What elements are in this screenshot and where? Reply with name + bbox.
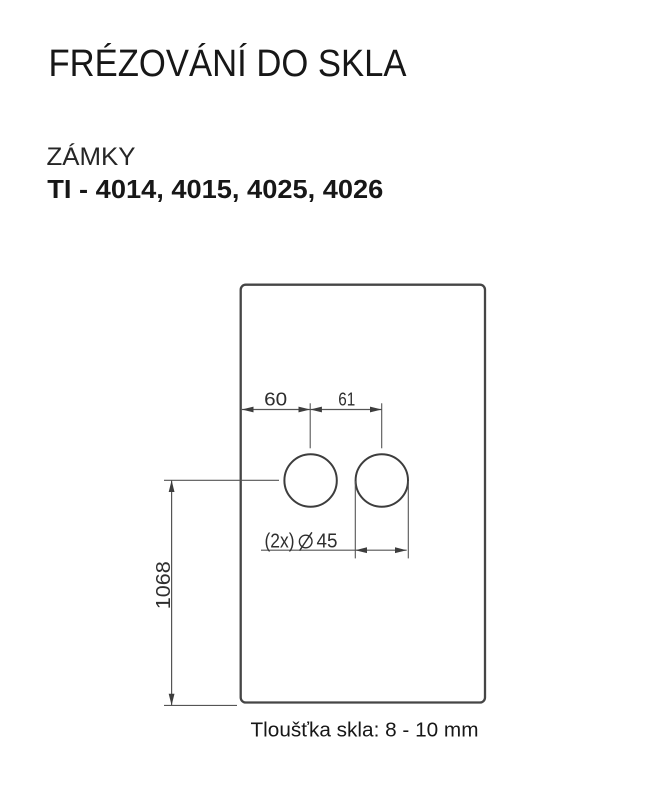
- svg-text:61: 61: [338, 390, 355, 410]
- svg-text:ZÁMKY: ZÁMKY: [47, 144, 136, 171]
- svg-text:FRÉZOVÁNÍ DO SKLA: FRÉZOVÁNÍ DO SKLA: [49, 42, 408, 85]
- svg-text:60: 60: [264, 390, 287, 410]
- svg-text:(2x): (2x): [265, 531, 295, 553]
- svg-text:45: 45: [317, 531, 338, 553]
- svg-text:1068: 1068: [153, 561, 175, 609]
- svg-text:Tloušťka skla: 8 - 10 mm: Tloušťka skla: 8 - 10 mm: [251, 720, 479, 742]
- svg-text:TI - 4014, 4015, 4025, 4026: TI - 4014, 4015, 4025, 4026: [47, 176, 383, 204]
